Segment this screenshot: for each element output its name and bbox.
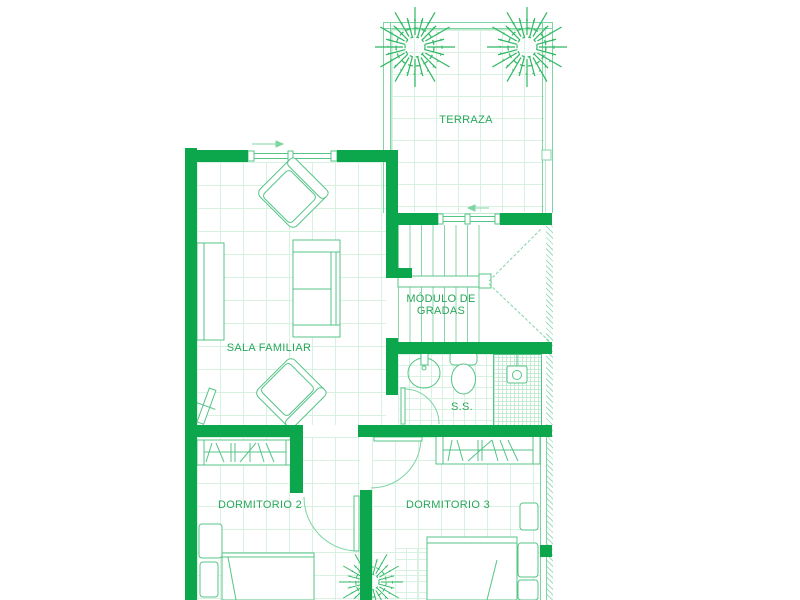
terraza-column [542, 150, 551, 160]
stairs-label-line2: GRADAS [391, 305, 491, 317]
door-arc-dorm3 [371, 437, 422, 488]
nightstand [199, 524, 222, 558]
wall-terraza-bottom-left [386, 213, 438, 225]
nightstand [200, 562, 218, 597]
arrow-icon [468, 205, 489, 211]
sala-sofa [293, 240, 340, 337]
sink-icon [408, 353, 440, 388]
bed-dorm2 [222, 553, 314, 600]
wall-terraza-bottom-right [500, 213, 552, 225]
arrow-icon [252, 141, 283, 147]
wall-bottom-left [185, 425, 303, 437]
terraza-label: TERRAZA [416, 114, 516, 126]
bathroom-label: S.S. [432, 401, 492, 413]
bed-dorm3 [427, 537, 517, 600]
stairs-label: MÓDULO DE GRADAS [391, 293, 491, 317]
wall-sala-top-left [185, 150, 248, 162]
window-stairs [438, 214, 500, 224]
sala-armchair-top [256, 156, 330, 230]
closet-dorm3 [436, 436, 540, 464]
wall-right-block [540, 545, 552, 557]
wall-left [185, 148, 197, 600]
plant-icon [375, 7, 455, 87]
wall-mid-bedrooms [360, 490, 372, 600]
closet-dorm2 [197, 440, 293, 465]
toilet-icon [450, 352, 477, 394]
pillow [518, 543, 538, 577]
dorm2-label: DORMITORIO 2 [185, 499, 335, 511]
stair-rail [398, 229, 549, 341]
sala-armchair-bottom [254, 356, 328, 430]
wall-bath-left [386, 338, 398, 395]
pillow [518, 580, 538, 600]
stairs-label-line1: MÓDULO DE [391, 293, 491, 305]
shower-icon [507, 354, 527, 383]
dorm3-label: DORMITORIO 3 [373, 499, 523, 511]
plant-icon [487, 7, 567, 87]
sala-label: SALA FAMILIAR [194, 342, 344, 354]
floor-plan: TERRAZA MÓDULO DE GRADAS SALA FAMILIAR S… [0, 0, 800, 600]
wall-stairs-left-stub [386, 268, 412, 278]
wall-bath-top [386, 342, 552, 354]
wall-sala-corner [290, 425, 303, 493]
wall-bottom-right [358, 425, 552, 437]
